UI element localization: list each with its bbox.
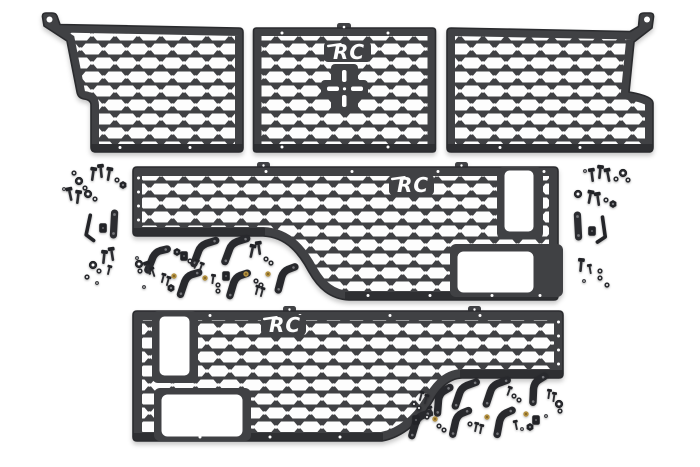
flat-washer: [604, 282, 609, 287]
flat-washer: [92, 196, 97, 201]
hex-bolt: [65, 186, 75, 201]
flat-washer: [424, 414, 429, 419]
flat-washer: [114, 177, 119, 182]
flat-washer: [520, 427, 524, 431]
hex-bolt: [74, 190, 82, 205]
product-photo: RC: [0, 0, 700, 467]
panel-side-driver: [133, 162, 563, 301]
hex-bolt: [587, 264, 594, 275]
flat-washer: [96, 268, 101, 273]
panel-front-center: [253, 23, 436, 153]
flat-washer: [582, 279, 586, 283]
flat-washer: [574, 190, 581, 197]
hex-bolt: [473, 422, 480, 433]
flat-washer: [544, 414, 548, 418]
hex-bolt: [596, 165, 604, 180]
hex-bolt: [97, 164, 105, 179]
flat-washer: [613, 176, 618, 181]
brass-washer: [202, 275, 207, 280]
hardware-cluster-left: [62, 164, 126, 285]
hex-bolt: [551, 392, 557, 403]
flat-washer: [416, 405, 421, 410]
spacer-block: [99, 223, 107, 233]
flat-washer: [511, 393, 516, 398]
flat-washer: [597, 275, 602, 280]
hex-nut: [120, 181, 127, 189]
flat-washer: [268, 260, 273, 265]
flat-washer: [619, 169, 626, 176]
strap-bracket: [450, 381, 480, 407]
brass-washer: [265, 271, 270, 276]
hex-bolt: [513, 420, 520, 431]
brass-washer: [243, 271, 248, 276]
flat-washer: [137, 268, 142, 273]
flat-washer: [75, 177, 82, 184]
flat-washer: [557, 408, 562, 413]
flat-washer: [187, 258, 192, 263]
flat-washer: [84, 190, 91, 197]
mount-tab-hole: [644, 17, 650, 23]
brass-washer: [432, 416, 437, 421]
hex-nut: [527, 423, 534, 431]
hex-bolt: [585, 189, 594, 204]
flat-washer: [411, 401, 416, 406]
spacer-block: [222, 271, 230, 281]
flat-washer: [603, 197, 608, 202]
flat-washer: [597, 268, 602, 273]
hex-bolt: [247, 243, 257, 258]
hex-nut: [174, 248, 181, 256]
flat-washer: [625, 177, 630, 182]
flat-washer: [516, 397, 521, 402]
strap-bracket: [221, 238, 251, 263]
hex-bolt: [594, 192, 603, 207]
flat-washer: [258, 282, 263, 287]
flat-washer: [441, 427, 446, 432]
spacer-block: [180, 251, 188, 261]
hex-bolt: [546, 389, 552, 400]
flat-washer: [142, 285, 146, 289]
allen-key: [85, 215, 98, 240]
flat-washer: [95, 281, 99, 285]
allen-key: [594, 217, 606, 242]
panel-front-left: [42, 13, 246, 153]
hardware-cluster-right: [574, 165, 631, 288]
flat-washer: [555, 400, 562, 407]
hex-nut: [610, 200, 617, 208]
hardware-cluster-center: [135, 238, 299, 298]
flat-washer: [583, 169, 587, 173]
hex-bolt: [105, 265, 112, 276]
spacer-block: [588, 226, 596, 236]
flat-washer: [253, 278, 258, 283]
flat-washer: [89, 261, 96, 268]
brand-logo: [261, 313, 306, 337]
flat-washer: [263, 256, 268, 261]
flat-bar-bracket: [110, 209, 119, 238]
hex-bolt: [478, 424, 485, 435]
strap-bracket: [190, 240, 220, 265]
flat-washer: [467, 421, 472, 426]
mount-tab-hole: [47, 17, 53, 23]
hex-bolt: [159, 272, 166, 283]
brand-logo: [389, 173, 434, 197]
flat-washer: [62, 187, 66, 191]
hex-bolt: [588, 168, 596, 183]
hex-bolt: [104, 167, 113, 182]
flat-washer: [436, 423, 441, 428]
flat-bar-bracket: [574, 211, 583, 240]
flat-washer: [135, 260, 142, 267]
hex-bolt: [603, 167, 612, 182]
hex-bolt: [89, 167, 98, 182]
spacer-block: [412, 415, 420, 425]
brass-washer: [171, 273, 176, 278]
strap-bracket: [481, 379, 511, 405]
hex-nut: [168, 284, 175, 292]
hex-bolt: [100, 250, 108, 265]
flat-washer: [215, 282, 220, 287]
hex-bolt: [210, 274, 216, 285]
brass-washer: [484, 414, 489, 419]
hex-bolt: [108, 247, 117, 262]
bent-mounting-bracket: [177, 272, 201, 296]
bent-mounting-bracket: [273, 266, 299, 291]
flat-washer: [215, 288, 220, 293]
flat-washer: [82, 185, 87, 190]
flat-washer: [135, 256, 139, 260]
spacer-block: [532, 415, 540, 425]
panel-front-right: [447, 13, 654, 153]
hex-bolt: [577, 258, 585, 273]
brand-logo: [324, 40, 371, 64]
flat-washer: [84, 274, 89, 279]
brass-washer: [523, 411, 528, 416]
flat-washer: [71, 170, 76, 175]
hex-bolt: [255, 241, 264, 256]
